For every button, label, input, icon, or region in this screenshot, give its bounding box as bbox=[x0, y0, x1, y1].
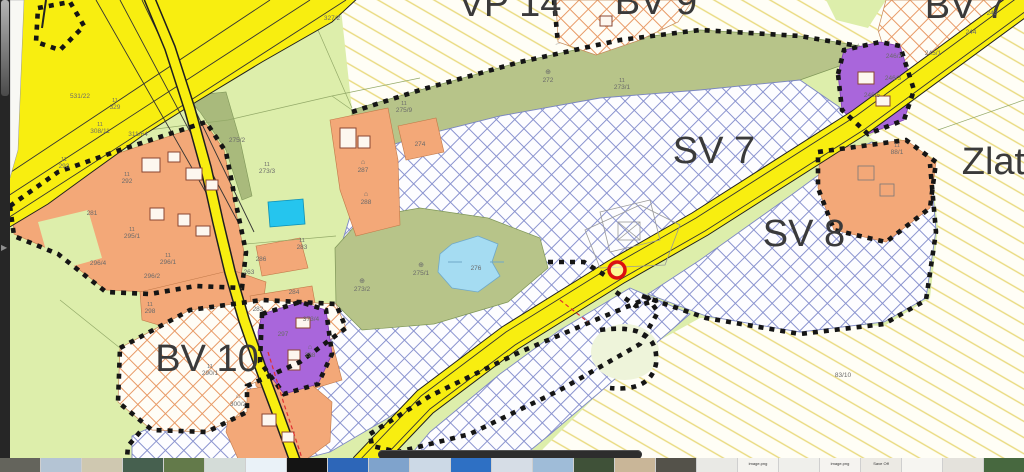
thumbnail-caption: image.png bbox=[820, 462, 860, 466]
filmstrip-thumbnail[interactable] bbox=[615, 458, 655, 472]
parcel-label: 245/1 bbox=[925, 50, 942, 57]
parcel-label: 276 bbox=[471, 265, 482, 272]
parcel-symbol-icon: ⌂ bbox=[361, 159, 365, 166]
parcel-label: 311/64 bbox=[128, 131, 148, 138]
filmstrip-thumbnail[interactable] bbox=[123, 458, 163, 472]
filmstrip-thumbnail[interactable] bbox=[656, 458, 696, 472]
filmstrip-thumbnail[interactable] bbox=[287, 458, 327, 472]
parcel-label: 88/1 bbox=[891, 149, 904, 156]
filmstrip-thumbnail[interactable] bbox=[328, 458, 368, 472]
parcel-label: 244 bbox=[966, 29, 977, 36]
parcel-label: 283 bbox=[297, 244, 308, 251]
parcel-label: 298 bbox=[305, 352, 316, 359]
filmstrip-thumbnail[interactable]: Save Off bbox=[861, 458, 901, 472]
parcel-label: 373/4 bbox=[303, 316, 320, 323]
vertical-scrollbar-thumb[interactable] bbox=[1, 0, 9, 96]
filmstrip-thumbnail[interactable] bbox=[533, 458, 573, 472]
filmstrip-thumbnail[interactable] bbox=[984, 458, 1024, 472]
thumbnail-caption: Save Off bbox=[861, 462, 901, 466]
parcel-label: 272 bbox=[543, 77, 554, 84]
zone-label: Zlatá bbox=[962, 141, 1024, 183]
parcel-label: 284 bbox=[289, 289, 300, 296]
parcel-label: 273/3 bbox=[259, 168, 276, 175]
filmstrip-thumbnail[interactable] bbox=[410, 458, 450, 472]
parcel-label: 288 bbox=[361, 199, 372, 206]
parcel-label: 296/1 bbox=[160, 259, 177, 266]
parcel-label: 275/9 bbox=[396, 107, 413, 114]
filmstrip-thumbnail[interactable] bbox=[943, 458, 983, 472]
parcel-label: 531/22 bbox=[70, 93, 90, 100]
zone-label: SV 7 bbox=[673, 130, 755, 172]
filmstrip-thumbnail[interactable]: image.png bbox=[738, 458, 778, 472]
parcel-label: 282 bbox=[253, 306, 264, 313]
filmstrip-thumbnail[interactable] bbox=[205, 458, 245, 472]
parcel-label: 329 bbox=[110, 104, 121, 111]
parcel-symbol-icon: ⊕ bbox=[545, 69, 551, 76]
parcel-label: 273/1 bbox=[614, 84, 631, 91]
filmstrip-thumbnail[interactable] bbox=[697, 458, 737, 472]
parcel-label: 246/2 bbox=[886, 53, 903, 60]
parcel-label: 300/2 bbox=[230, 401, 247, 408]
zone-label: SV 8 bbox=[763, 213, 845, 255]
filmstrip-thumbnail[interactable] bbox=[779, 458, 819, 472]
parcel-label: 298 bbox=[145, 308, 156, 315]
map-canvas[interactable]: VP 14BV 9BV 7SV 7SV 8BV 10Zlatá 327/2531… bbox=[0, 0, 1024, 472]
thumbnail-filmstrip[interactable]: image.pngimage.pngSave Off bbox=[0, 458, 1024, 472]
parcel-label: 246/3 bbox=[885, 75, 902, 82]
parcel-symbol-icon: ⊕ bbox=[418, 262, 424, 269]
parcel-symbol-icon: ⌂ bbox=[236, 393, 240, 400]
parcel-symbol-icon: ⌂ bbox=[364, 191, 368, 198]
filmstrip-thumbnail[interactable]: image.png bbox=[820, 458, 860, 472]
parcel-label: 327/2 bbox=[324, 15, 341, 22]
zoning-map[interactable]: VP 14BV 9BV 7SV 7SV 8BV 10Zlatá 327/2531… bbox=[0, 0, 1024, 472]
parcel-label: 275/1 bbox=[413, 270, 430, 277]
parcel-label: 308/11 bbox=[90, 128, 110, 135]
parcel-label: 292 bbox=[122, 178, 133, 185]
map-viewer-window: VP 14BV 9BV 7SV 7SV 8BV 10Zlatá 327/2531… bbox=[0, 0, 1024, 472]
filmstrip-thumbnail[interactable] bbox=[574, 458, 614, 472]
parcel-label: 246/5 bbox=[864, 92, 881, 99]
zone-label: VP 14 bbox=[459, 0, 562, 25]
parcel-label: 293 bbox=[59, 163, 70, 170]
parcel-label: 281 bbox=[87, 210, 98, 217]
filmstrip-thumbnail[interactable] bbox=[492, 458, 532, 472]
vertical-scrollbar[interactable]: ▶ bbox=[0, 0, 10, 458]
parcel-symbol-icon: ⊕ bbox=[359, 278, 365, 285]
parcel-label: 297 bbox=[278, 331, 289, 338]
filmstrip-thumbnail[interactable] bbox=[0, 458, 40, 472]
parcel-label: 263 bbox=[244, 269, 255, 276]
filmstrip-thumbnail[interactable] bbox=[246, 458, 286, 472]
parcel-label: 273/2 bbox=[354, 286, 371, 293]
parcel-label: 274 bbox=[415, 141, 426, 148]
filmstrip-thumbnail[interactable] bbox=[451, 458, 491, 472]
parcel-label: 296/2 bbox=[144, 273, 161, 280]
thumbnail-caption: image.png bbox=[738, 462, 778, 466]
parcel-label: 295/1 bbox=[124, 233, 141, 240]
filmstrip-thumbnail[interactable] bbox=[902, 458, 942, 472]
selected-location-marker[interactable] bbox=[609, 262, 625, 278]
parcel-label: 287 bbox=[358, 167, 369, 174]
filmstrip-thumbnail[interactable] bbox=[82, 458, 122, 472]
filmstrip-thumbnail[interactable] bbox=[164, 458, 204, 472]
filmstrip-thumbnail[interactable] bbox=[369, 458, 409, 472]
zone-label: BV 9 bbox=[615, 0, 697, 23]
filmstrip-thumbnail[interactable] bbox=[41, 458, 81, 472]
parcel-label: 243 bbox=[987, 10, 998, 17]
parcel-label: 290/1 bbox=[202, 370, 219, 377]
parcel-label: 275/2 bbox=[229, 137, 246, 144]
parcel-label: 286 bbox=[256, 256, 267, 263]
parcel-label: 296/4 bbox=[90, 260, 107, 267]
parcel-symbol-icon: ⌂ bbox=[308, 344, 312, 351]
side-panel-expander-icon[interactable]: ▶ bbox=[1, 244, 7, 252]
parcel-label: 83/10 bbox=[835, 372, 852, 379]
